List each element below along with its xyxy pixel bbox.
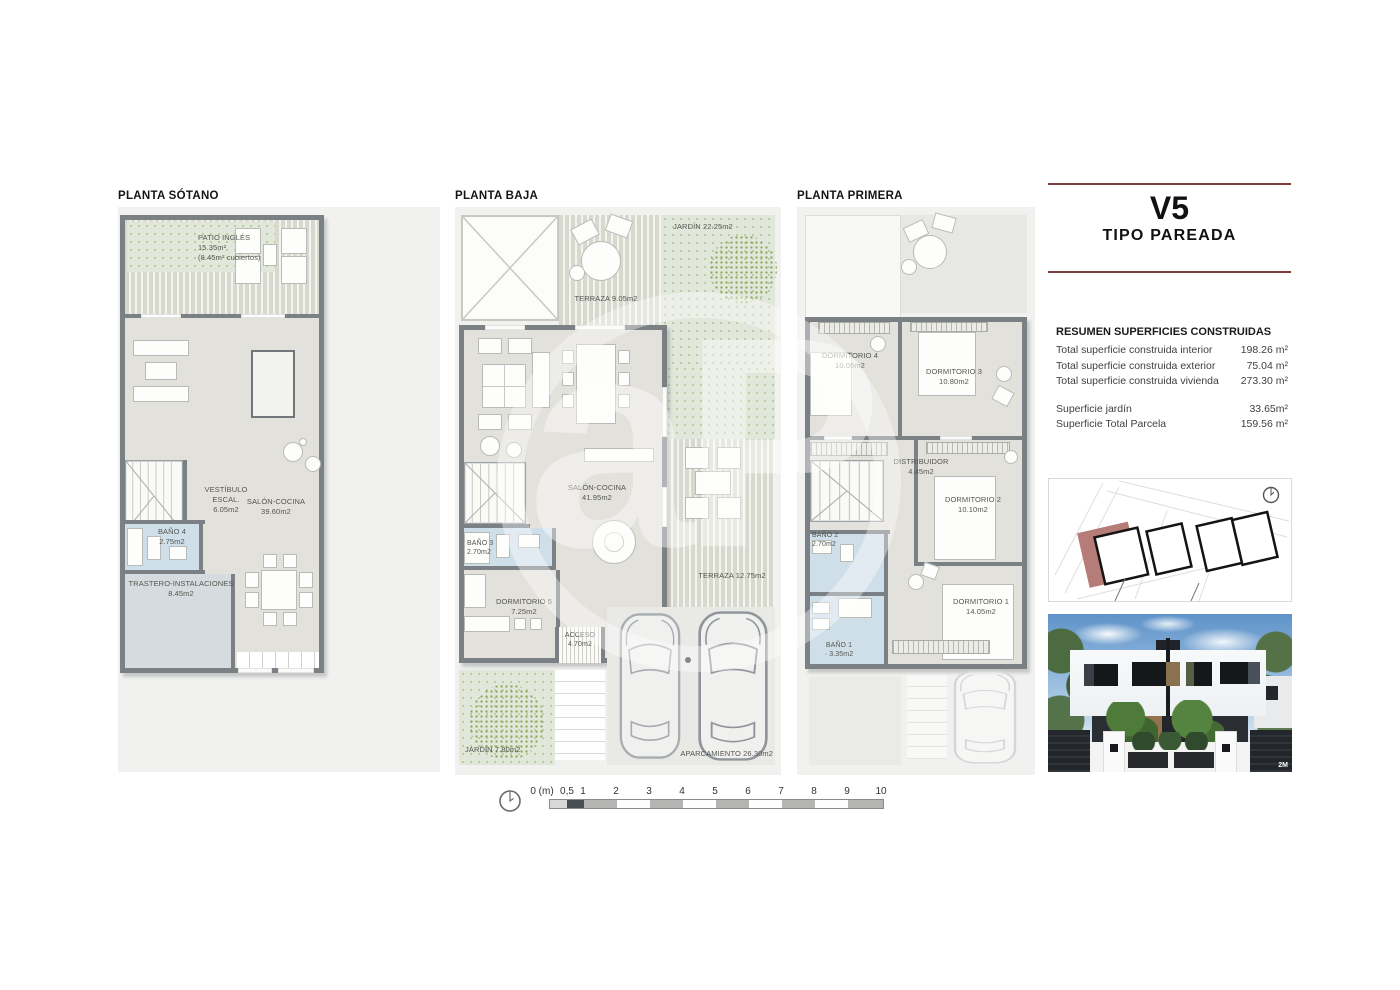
sotano-building: [120, 215, 324, 673]
chair: [618, 350, 630, 364]
sink: [518, 534, 540, 548]
car-icon: [693, 609, 773, 763]
staircase-icon: [464, 462, 526, 524]
window-strip: [1132, 662, 1180, 686]
window: [485, 325, 525, 330]
room-label-dorm2: DORMITORIO 2 10.10m2: [939, 495, 1007, 515]
room-label-salon: SALÓN-COCINA 41.95m2: [555, 483, 639, 503]
summary-value: 75.04 m²: [1247, 359, 1288, 375]
summary-label: Superficie jardín: [1056, 402, 1132, 418]
summary-label: Total superficie construida vivienda: [1056, 374, 1219, 390]
side-table: [901, 259, 917, 275]
plan-sotano: PLANTA SÓTANO: [118, 207, 440, 772]
window-strip: [237, 652, 319, 668]
scale-bar: [549, 799, 884, 809]
summary-row: Superficie Total Parcela 159.56 m²: [1056, 417, 1288, 433]
shower: [838, 598, 872, 618]
scale-tick-label: 1: [567, 786, 599, 797]
room-label-aparcamiento: APARCAMIENTO 26.30m2: [641, 749, 773, 759]
interior-wall: [898, 322, 902, 440]
jardin-side: [665, 365, 775, 439]
drain-dot: [685, 657, 691, 663]
scale-tick-label: 6: [732, 786, 764, 797]
coffee-table: [145, 362, 177, 380]
armchair: [908, 574, 924, 590]
room-label-jardin-bottom: JARDÍN 7.80m2: [465, 745, 545, 755]
armchair: [478, 338, 502, 354]
scale-tick-label: 3: [633, 786, 665, 797]
scale-tick-label: 8: [798, 786, 830, 797]
room-label-terraza-top: TERRAZA 9.05m2: [561, 294, 651, 304]
dining-table: [261, 570, 297, 610]
room-label-bano2: BAÑO 2 2.70m2: [812, 531, 852, 549]
mailbox: [1222, 744, 1230, 752]
summary-label: Superficie Total Parcela: [1056, 417, 1166, 433]
window-strip: [1084, 664, 1118, 686]
summary-label: Total superficie construida exterior: [1056, 359, 1215, 375]
armchair: [991, 385, 1014, 408]
window: [662, 487, 667, 527]
window: [241, 314, 285, 318]
armchair: [1004, 450, 1018, 464]
room-label-dorm4: DORMITORIO 4 10.05m2: [819, 351, 881, 371]
interior-wall: [884, 530, 888, 592]
wardrobe: [926, 442, 1010, 454]
window: [141, 314, 181, 318]
floor-plan-sheet: PLANTA SÓTANO: [0, 0, 1400, 990]
summary-value: 198.26 m²: [1241, 343, 1288, 359]
scale-tick-label: 2: [600, 786, 632, 797]
chair: [562, 350, 574, 364]
plan-primera: PLANTA PRIMERA: [797, 207, 1035, 775]
facade-render: 2M: [1048, 614, 1292, 772]
plan-baja-title: PLANTA BAJA: [455, 190, 538, 202]
room-label-acceso: ACCESO 4.70m2: [557, 631, 603, 649]
room-label-dorm1: DORMITORIO 1 14.05m2: [945, 597, 1017, 617]
outdoor-chair: [717, 447, 741, 469]
room-label-trastero: TRASTERO-INSTALACIONES 8.45m2: [124, 579, 238, 599]
site-key-plan: [1048, 478, 1292, 602]
scale-tick-label: 10: [865, 786, 897, 797]
interior-wall: [199, 520, 203, 574]
chair: [514, 618, 526, 630]
window: [238, 668, 272, 673]
room-label-jardin-top: JARDÍN 22.25m2: [653, 222, 753, 232]
shower: [127, 528, 143, 566]
chair: [562, 372, 574, 386]
room-label-terraza-right: TERRAZA 12.75m2: [689, 571, 775, 581]
interior-wall: [884, 596, 888, 664]
chair: [618, 372, 630, 386]
armchair: [508, 414, 532, 430]
chair: [283, 554, 297, 568]
armchair: [870, 336, 886, 352]
coffee-table: [482, 364, 526, 408]
summary-row: Total superficie construida exterior 75.…: [1056, 359, 1288, 375]
chair: [299, 572, 313, 588]
window: [662, 387, 667, 437]
render-credit: 2M: [1278, 762, 1288, 769]
chair: [618, 394, 630, 408]
outdoor-chair: [685, 497, 709, 519]
wardrobe: [464, 574, 486, 608]
entry-steps: [907, 675, 947, 759]
scale-tick-label: 9: [831, 786, 863, 797]
car-icon: [615, 611, 685, 761]
interior-wall: [552, 528, 556, 570]
round-table: [913, 235, 947, 269]
side-table: [569, 265, 585, 281]
window: [278, 668, 314, 673]
hedge: [1126, 732, 1214, 750]
door: [824, 436, 852, 440]
unit-title: V5: [1048, 190, 1291, 227]
window-strip: [1220, 662, 1260, 684]
wardrobe: [818, 322, 890, 334]
desk: [464, 616, 510, 632]
room-label-bano4: BAÑO 4 2.75m2: [148, 527, 196, 547]
chair: [245, 572, 259, 588]
armchair: [996, 366, 1012, 382]
plan-sotano-title: PLANTA SÓTANO: [118, 190, 219, 202]
room-label-bano1: BAÑO 1 · 3.35m2: [813, 641, 865, 659]
skylight-icon: [461, 215, 559, 321]
armchair: [508, 338, 532, 354]
armchair: [305, 456, 321, 472]
north-arrow-icon: [498, 789, 522, 813]
dining-table: [576, 344, 616, 424]
pool-table: [251, 350, 295, 418]
summary-label: Total superficie construida interior: [1056, 343, 1212, 359]
chair: [263, 554, 277, 568]
site-plan-drawing: [1049, 479, 1291, 601]
room-label-dorm5: DORMITORIO 5 7.25m2: [491, 597, 557, 617]
tree-icon: [709, 235, 777, 303]
room-label-salon: SALÓN-COCINA 39.60m2: [226, 497, 326, 517]
chair: [283, 612, 297, 626]
mailbox: [1110, 744, 1118, 752]
outdoor-chair: [717, 497, 741, 519]
entry-pillar: [1216, 732, 1236, 772]
wardrobe: [910, 322, 988, 332]
plan-baja: PLANTA BAJA: [455, 207, 781, 775]
chair: [299, 592, 313, 608]
sofa: [133, 340, 189, 356]
outdoor-chair: [685, 447, 709, 469]
chair: [530, 618, 542, 630]
wardrobe: [810, 442, 888, 456]
surface-summary: RESUMEN SUPERFICIES CONSTRUIDAS Total su…: [1056, 326, 1288, 433]
title-rule-bottom: [1048, 271, 1291, 273]
summary-value: 33.65m²: [1249, 402, 1288, 418]
sink: [812, 602, 830, 614]
bench: [892, 640, 990, 654]
room-label-patio: PATIO INGLÉS 15.35m² (8.45m² cubiertos): [198, 233, 294, 262]
door: [940, 436, 972, 440]
sofa: [133, 386, 189, 402]
interior-wall: [464, 566, 556, 570]
window: [575, 325, 625, 330]
sofa: [532, 352, 550, 408]
outdoor-table: [695, 471, 731, 495]
room-label-dorm3: DORMITORIO 3 10.80m2: [921, 367, 987, 387]
summary-value: 159.56 m²: [1241, 417, 1288, 433]
sink: [169, 546, 187, 560]
room-label-distribuidor: DISTRIBUIDOR 4.45m2: [885, 457, 957, 477]
entry-pillar: [1104, 732, 1124, 772]
summary-row: Total superficie construida interior 198…: [1056, 343, 1288, 359]
chair: [562, 394, 574, 408]
scale-tick-label: 7: [765, 786, 797, 797]
window-strip: [1186, 662, 1212, 686]
unit-subtitle: TIPO PAREADA: [1048, 227, 1291, 245]
gate-left: [1048, 730, 1090, 772]
chair: [263, 612, 277, 626]
scale-tick-label: 5: [699, 786, 731, 797]
bed: [934, 476, 996, 560]
entry-steps: [555, 670, 605, 760]
summary-heading: RESUMEN SUPERFICIES CONSTRUIDAS: [1056, 326, 1288, 338]
summary-row: Total superficie construida vivienda 273…: [1056, 374, 1288, 390]
summary-row: Superficie jardín 33.65m²: [1056, 402, 1288, 418]
armchair: [478, 414, 502, 430]
sink: [812, 618, 830, 630]
staircase-icon: [810, 460, 884, 522]
kitchen-island: [584, 448, 654, 462]
roof-garden-below: [809, 677, 901, 765]
summary-value: 273.30 m²: [1241, 374, 1288, 390]
round-table: [581, 241, 621, 281]
scale-tick-label: 4: [666, 786, 698, 797]
plan-primera-title: PLANTA PRIMERA: [797, 190, 903, 202]
planter: [1128, 752, 1168, 768]
room-label-bano3: BAÑO 3 2.70m2: [467, 539, 511, 557]
table-center: [604, 532, 624, 552]
armchair: [480, 436, 500, 456]
planter: [1174, 752, 1214, 768]
title-rule-top: [1048, 183, 1291, 185]
car-icon: [949, 669, 1021, 765]
side-table: [299, 438, 307, 446]
chair: [245, 592, 259, 608]
armchair: [506, 442, 522, 458]
north-arrow-icon: [1264, 488, 1279, 503]
